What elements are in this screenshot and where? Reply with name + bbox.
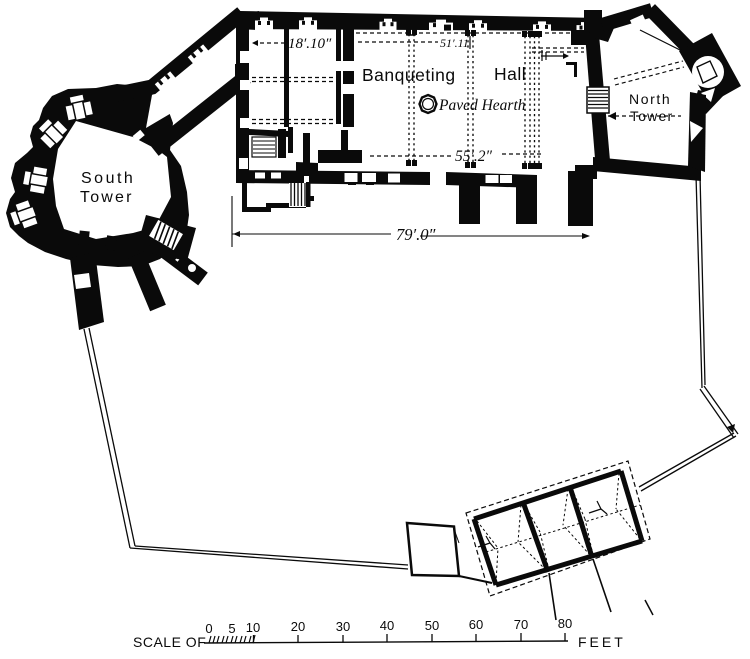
svg-text:40: 40 <box>380 618 394 633</box>
svg-text:5: 5 <box>228 621 235 636</box>
svg-text:60: 60 <box>469 617 483 632</box>
svg-text:20: 20 <box>291 619 305 634</box>
svg-text:0: 0 <box>205 621 212 636</box>
svg-text:FEET: FEET <box>578 634 626 650</box>
svg-text:79′.0″: 79′.0″ <box>396 225 436 244</box>
svg-text:SCALE OF: SCALE OF <box>133 634 206 650</box>
svg-text:55′.2″: 55′.2″ <box>455 148 493 165</box>
svg-text:Paved Hearth: Paved Hearth <box>438 97 526 114</box>
svg-text:Hall: Hall <box>494 64 526 84</box>
svg-text:Tower: Tower <box>80 189 134 206</box>
svg-text:Banqueting: Banqueting <box>362 65 456 85</box>
svg-text:50: 50 <box>425 618 439 633</box>
svg-text:South: South <box>81 170 135 187</box>
svg-text:30: 30 <box>336 619 350 634</box>
svg-text:10: 10 <box>246 620 260 635</box>
svg-text:18′.10″: 18′.10″ <box>288 36 332 52</box>
svg-text:Tower: Tower <box>630 108 673 124</box>
svg-text:North: North <box>629 91 671 107</box>
svg-text:70: 70 <box>514 617 528 632</box>
svg-text:51′.11: 51′.11 <box>440 36 469 50</box>
svg-text:80: 80 <box>558 616 572 631</box>
